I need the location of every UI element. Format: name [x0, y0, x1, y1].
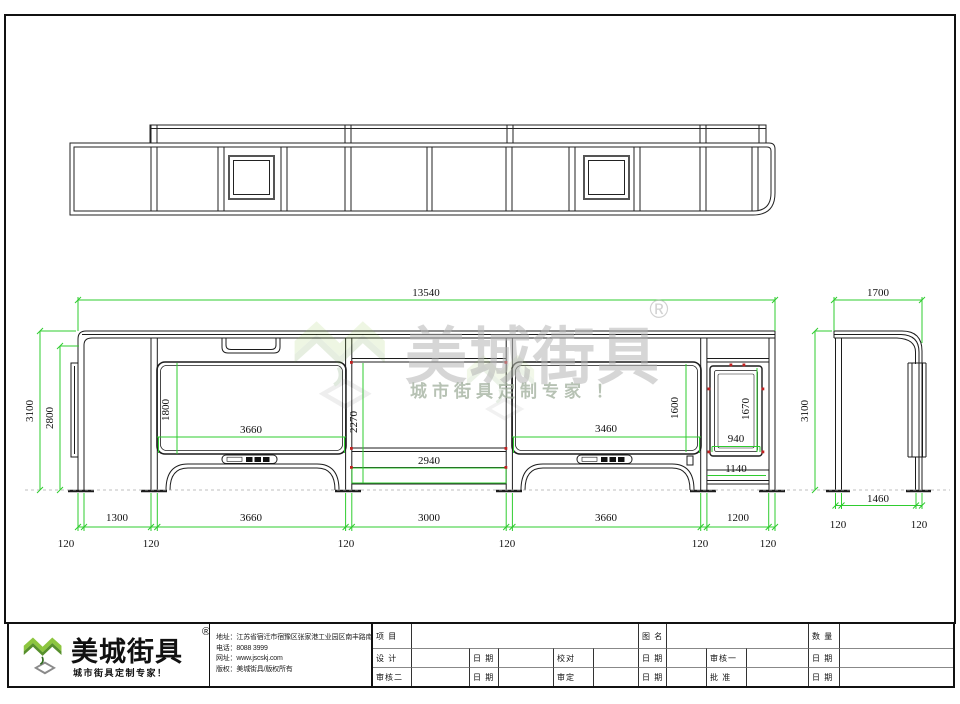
- field-label-proofread: 校对: [553, 648, 593, 667]
- field-value-date: [666, 667, 706, 686]
- field-value-date: [666, 648, 706, 667]
- dim-panel2-width: 3460: [595, 423, 618, 435]
- dim-mid-height: 2270: [348, 411, 360, 434]
- dim-post: 120: [58, 538, 75, 550]
- dim-side-height: 3100: [799, 400, 811, 423]
- company-copyright: 版权：美城街具/版权所有: [216, 665, 371, 676]
- field-label-drawing-name: 图 名: [638, 624, 666, 648]
- dim-panel1-height: 1800: [160, 399, 172, 422]
- dim-panel1-width: 3660: [240, 424, 263, 436]
- dim-post: 120: [338, 538, 355, 550]
- field-value-date: [498, 648, 553, 667]
- bench-plaque: [222, 455, 277, 464]
- dim-lightbox-base: 1140: [725, 463, 747, 475]
- dim-lightbox-height: 1670: [740, 398, 752, 421]
- dim-chain-5: 1200: [727, 512, 750, 524]
- field-value-reviewer1: [746, 648, 808, 667]
- field-value-project: [411, 624, 638, 648]
- field-value-quantity: [839, 624, 953, 648]
- dim-side-roof-width: 1700: [867, 287, 890, 299]
- field-value-date: [498, 667, 553, 686]
- field-label-quantity: 数 量: [808, 624, 839, 648]
- field-label-date: 日 期: [469, 648, 498, 667]
- cad-drawing: 13540 3100 2800 1800 3660 2270 2940 1600…: [0, 0, 960, 704]
- field-value-date: [839, 667, 953, 686]
- dim-side-post: 120: [911, 519, 928, 531]
- field-label-date: 日 期: [808, 667, 839, 686]
- company-logo-icon: [21, 630, 67, 680]
- dim-post: 120: [143, 538, 160, 550]
- field-label-date: 日 期: [469, 667, 498, 686]
- drawing-sheet: 13540 3100 2800 1800 3660 2270 2940 1600…: [0, 0, 960, 704]
- field-value-approve: [746, 667, 808, 686]
- plan-view: [70, 125, 775, 215]
- watermark-tagline: 城市街具定制专家 ！: [410, 381, 618, 401]
- dim-side-post: 120: [830, 519, 847, 531]
- dim-height: 3100: [24, 400, 36, 423]
- field-value-verify: [593, 667, 638, 686]
- field-value-proofread: [593, 648, 638, 667]
- bench-plaque: [577, 455, 632, 464]
- dim-panel2-height: 1600: [669, 397, 681, 420]
- field-value-date: [839, 648, 953, 667]
- field-label-reviewer1: 审核一: [706, 648, 746, 667]
- field-label-date: 日 期: [638, 667, 666, 686]
- dim-clear-height: 2800: [44, 407, 56, 430]
- field-label-approve: 批 准: [706, 667, 746, 686]
- dim-chain-3: 3000: [418, 512, 441, 524]
- dim-chain-4: 3660: [595, 512, 618, 524]
- dim-mid-width: 2940: [418, 455, 441, 467]
- company-tagline: 城市街具定制专家！: [73, 666, 168, 679]
- field-value-design: [411, 648, 469, 667]
- watermark: 美城街具 ® 城市街具定制专家 ！: [295, 294, 669, 420]
- dim-post: 120: [760, 538, 777, 550]
- dim-side-span: 1460: [867, 493, 890, 505]
- field-label-date: 日 期: [638, 648, 666, 667]
- company-phone: 电话：8088 3999: [216, 644, 371, 655]
- field-value-drawing-name: [666, 624, 808, 648]
- field-label-date: 日 期: [808, 648, 839, 667]
- company-logo-cell: 美城街具 ® 城市街具定制专家！: [9, 624, 209, 686]
- dim-post: 120: [692, 538, 709, 550]
- company-website: 网址：www.jscskj.com: [216, 654, 371, 665]
- dim-chain-2: 3660: [240, 512, 263, 524]
- company-brand-name: 美城街具: [71, 630, 183, 669]
- watermark-registered-mark: ®: [649, 294, 668, 324]
- title-block-table: 项 目 图 名 数 量 设 计 日 期 校对 日 期 审核一 日 期 审核二 日…: [371, 624, 953, 686]
- field-label-reviewer2: 审核二: [373, 667, 411, 686]
- field-label-verify: 审定: [553, 667, 593, 686]
- field-value-reviewer2: [411, 667, 469, 686]
- company-info: 地址：江苏省宿迁市宿豫区张家港工业园区南丰路南侧1号 电话：8088 3999 …: [209, 624, 371, 686]
- dim-lightbox-width: 940: [728, 433, 745, 445]
- title-block: 美城街具 ® 城市街具定制专家！ 地址：江苏省宿迁市宿豫区张家港工业园区南丰路南…: [7, 622, 955, 688]
- dim-post: 120: [499, 538, 516, 550]
- dim-chain-1: 1300: [106, 512, 129, 524]
- company-address: 地址：江苏省宿迁市宿豫区张家港工业园区南丰路南侧1号: [216, 633, 371, 644]
- field-label-design: 设 计: [373, 648, 411, 667]
- side-elevation: [826, 331, 931, 491]
- field-label-project: 项 目: [373, 624, 411, 648]
- dim-total-width: 13540: [412, 287, 440, 299]
